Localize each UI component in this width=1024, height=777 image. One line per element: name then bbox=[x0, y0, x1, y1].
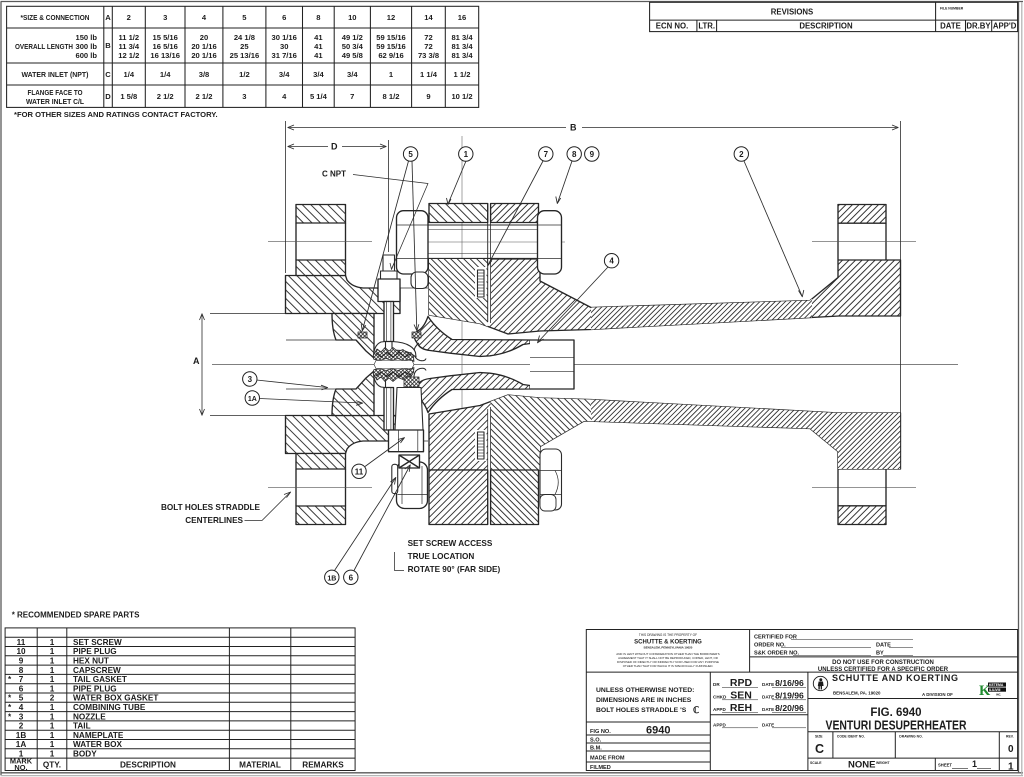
svg-text:150 lb: 150 lb bbox=[75, 33, 97, 42]
svg-text:B: B bbox=[570, 123, 577, 133]
svg-text:1A: 1A bbox=[16, 740, 27, 749]
svg-text:PIPE PLUG: PIPE PLUG bbox=[73, 647, 117, 656]
svg-text:6940: 6940 bbox=[646, 725, 670, 737]
svg-text:BENSALEM, PENNSYLVANIA 19020: BENSALEM, PENNSYLVANIA 19020 bbox=[644, 646, 693, 650]
svg-text:81 3/4: 81 3/4 bbox=[451, 51, 473, 60]
svg-text:4: 4 bbox=[609, 257, 614, 266]
svg-text:1 1/2: 1 1/2 bbox=[454, 70, 471, 79]
svg-text:1/2: 1/2 bbox=[239, 70, 250, 79]
svg-text:OTHER THAN THAT FOR WHICH IT I: OTHER THAN THAT FOR WHICH IT IS SPECIFIC… bbox=[623, 664, 714, 668]
svg-text:49 5/8: 49 5/8 bbox=[342, 51, 363, 60]
svg-text:TAIL: TAIL bbox=[73, 722, 91, 731]
svg-text:INC.: INC. bbox=[996, 693, 1001, 697]
svg-text:30: 30 bbox=[280, 42, 288, 51]
svg-text:OVERALL LENGTH: OVERALL LENGTH bbox=[15, 42, 73, 51]
svg-text:11: 11 bbox=[17, 638, 26, 647]
svg-text:41: 41 bbox=[314, 33, 323, 42]
svg-text:1: 1 bbox=[389, 70, 394, 79]
svg-text:CAPSCREW: CAPSCREW bbox=[73, 666, 121, 675]
svg-text:S.O.: S.O. bbox=[590, 738, 602, 744]
svg-text:4: 4 bbox=[202, 13, 207, 22]
svg-text:ℂ: ℂ bbox=[693, 705, 699, 715]
svg-text:*FOR OTHER SIZES AND RATINGS C: *FOR OTHER SIZES AND RATINGS CONTACT FAC… bbox=[14, 110, 218, 119]
svg-text:31 7/16: 31 7/16 bbox=[272, 51, 297, 60]
svg-text:REV.: REV. bbox=[1006, 735, 1014, 739]
svg-text:20 1/16: 20 1/16 bbox=[191, 51, 216, 60]
svg-text:DESCRIPTION: DESCRIPTION bbox=[799, 22, 853, 31]
svg-text:A: A bbox=[193, 356, 200, 366]
svg-text:1: 1 bbox=[50, 712, 55, 721]
svg-text:20 1/16: 20 1/16 bbox=[191, 42, 216, 51]
svg-text:8/20/96: 8/20/96 bbox=[775, 703, 804, 713]
svg-text:*: * bbox=[8, 712, 12, 721]
svg-text:D: D bbox=[105, 92, 111, 101]
svg-text:5: 5 bbox=[408, 150, 413, 159]
svg-text:300 lb: 300 lb bbox=[75, 42, 97, 51]
svg-text:REVISIONS: REVISIONS bbox=[771, 8, 813, 17]
svg-text:5: 5 bbox=[19, 694, 24, 703]
svg-text:24 1/8: 24 1/8 bbox=[234, 33, 255, 42]
svg-text:3: 3 bbox=[248, 375, 253, 384]
svg-text:10 1/2: 10 1/2 bbox=[451, 92, 472, 101]
svg-text:A: A bbox=[105, 13, 111, 22]
svg-text:DATE: DATE bbox=[762, 682, 774, 687]
svg-text:BODY: BODY bbox=[73, 750, 97, 759]
svg-text:30 1/16: 30 1/16 bbox=[272, 33, 297, 42]
svg-text:DATE: DATE bbox=[762, 707, 774, 712]
svg-text:5 1/4: 5 1/4 bbox=[310, 92, 328, 101]
svg-text:DATE: DATE bbox=[940, 22, 961, 31]
svg-text:BOLT HOLES STRADDLE: BOLT HOLES STRADDLE bbox=[161, 503, 261, 512]
svg-text:FLANGE FACE TO: FLANGE FACE TO bbox=[28, 88, 83, 97]
svg-text:59 15/16: 59 15/16 bbox=[376, 33, 406, 42]
svg-text:UNLESS OTHERWISE NOTED:: UNLESS OTHERWISE NOTED: bbox=[596, 687, 694, 694]
svg-text:MADE FROM: MADE FROM bbox=[590, 756, 625, 762]
svg-text:0: 0 bbox=[1008, 744, 1014, 755]
svg-text:6: 6 bbox=[19, 684, 24, 693]
svg-text:WATER BOX: WATER BOX bbox=[73, 740, 123, 749]
svg-text:DR.BY: DR.BY bbox=[966, 22, 991, 31]
svg-text:NO.: NO. bbox=[14, 763, 27, 772]
svg-text:DESCRIPTION: DESCRIPTION bbox=[120, 760, 176, 769]
svg-text:*: * bbox=[8, 703, 12, 712]
svg-text:DIMENSIONS ARE IN INCHES: DIMENSIONS ARE IN INCHES bbox=[596, 697, 692, 704]
svg-text:4: 4 bbox=[282, 92, 287, 101]
svg-text:1: 1 bbox=[1008, 762, 1014, 773]
svg-text:CERTIFIED FOR: CERTIFIED FOR bbox=[754, 635, 797, 641]
svg-text:11: 11 bbox=[355, 467, 364, 476]
svg-text:FILE NUMBER: FILE NUMBER bbox=[940, 7, 964, 11]
svg-text:4: 4 bbox=[19, 703, 24, 712]
svg-text:THIS DRAWING IS THE PROPERTY O: THIS DRAWING IS THE PROPERTY OF bbox=[639, 633, 697, 637]
svg-text:1: 1 bbox=[50, 722, 55, 731]
svg-text:NAMEPLATE: NAMEPLATE bbox=[73, 731, 124, 740]
svg-text:49 1/2: 49 1/2 bbox=[342, 33, 363, 42]
svg-text:8: 8 bbox=[19, 666, 24, 675]
svg-text:KETEMA: KETEMA bbox=[989, 683, 1004, 687]
svg-text:8: 8 bbox=[572, 150, 577, 159]
svg-text:5: 5 bbox=[242, 13, 247, 22]
svg-text:VENTURI DESUPERHEATER: VENTURI DESUPERHEATER bbox=[826, 718, 967, 733]
svg-text:DATE: DATE bbox=[876, 643, 891, 649]
svg-text:SCHUTTE AND KOERTING: SCHUTTE AND KOERTING bbox=[832, 673, 958, 683]
svg-text:1: 1 bbox=[464, 150, 469, 159]
svg-text:7: 7 bbox=[19, 675, 24, 684]
svg-text:BOLT HOLES STRADDLE 'S: BOLT HOLES STRADDLE 'S bbox=[596, 707, 687, 714]
svg-text:ECN NO.: ECN NO. bbox=[656, 22, 689, 31]
svg-text:1: 1 bbox=[50, 703, 55, 712]
svg-text:20: 20 bbox=[200, 33, 208, 42]
svg-text:SET SCREW: SET SCREW bbox=[73, 638, 122, 647]
svg-text:1 1/4: 1 1/4 bbox=[420, 70, 438, 79]
svg-text:CODE IDENT NO.: CODE IDENT NO. bbox=[837, 735, 865, 739]
svg-text:6: 6 bbox=[282, 13, 286, 22]
svg-text:QTY.: QTY. bbox=[43, 760, 61, 769]
svg-text:SIZE: SIZE bbox=[815, 735, 823, 739]
svg-text:1: 1 bbox=[50, 731, 55, 740]
svg-text:* RECOMMENDED SPARE PARTS: * RECOMMENDED SPARE PARTS bbox=[12, 611, 140, 620]
svg-text:MATERIAL: MATERIAL bbox=[239, 760, 281, 769]
svg-text:1: 1 bbox=[50, 740, 55, 749]
svg-text:62 9/16: 62 9/16 bbox=[378, 51, 403, 60]
svg-text:REMARKS: REMARKS bbox=[302, 760, 344, 769]
svg-text:DO NOT USE FOR CONSTRUCTION: DO NOT USE FOR CONSTRUCTION bbox=[832, 660, 934, 666]
svg-text:3/8: 3/8 bbox=[199, 70, 210, 79]
svg-text:3: 3 bbox=[163, 13, 167, 22]
svg-text:1B: 1B bbox=[16, 731, 27, 740]
svg-text:1: 1 bbox=[972, 759, 977, 769]
svg-text:9: 9 bbox=[19, 657, 24, 666]
svg-text:1: 1 bbox=[50, 647, 55, 656]
svg-text:BY: BY bbox=[876, 651, 884, 657]
svg-text:2: 2 bbox=[50, 694, 55, 703]
svg-text:3: 3 bbox=[19, 712, 24, 721]
svg-text:APP'D: APP'D bbox=[993, 22, 1017, 31]
svg-text:B: B bbox=[105, 41, 111, 50]
svg-text:16 13/16: 16 13/16 bbox=[150, 51, 180, 60]
svg-text:APPD: APPD bbox=[713, 723, 726, 728]
svg-text:CHKD: CHKD bbox=[713, 695, 727, 700]
svg-text:2: 2 bbox=[19, 722, 24, 731]
svg-text:1: 1 bbox=[50, 666, 55, 675]
svg-text:NOZZLE: NOZZLE bbox=[73, 712, 106, 721]
svg-text:COMBINING TUBE: COMBINING TUBE bbox=[73, 703, 146, 712]
svg-text:15 5/16: 15 5/16 bbox=[153, 33, 178, 42]
svg-text:1/4: 1/4 bbox=[160, 70, 171, 79]
svg-text:WATER INLET C/L: WATER INLET C/L bbox=[26, 97, 84, 106]
svg-text:10: 10 bbox=[348, 13, 356, 22]
svg-text:C: C bbox=[105, 70, 111, 79]
svg-text:7: 7 bbox=[350, 92, 354, 101]
svg-text:50 3/4: 50 3/4 bbox=[342, 42, 364, 51]
svg-text:NONE: NONE bbox=[848, 760, 875, 771]
svg-text:DATE: DATE bbox=[762, 723, 774, 728]
svg-text:SET SCREW ACCESS: SET SCREW ACCESS bbox=[408, 539, 493, 548]
svg-text:1: 1 bbox=[50, 750, 55, 759]
svg-text:TRUE LOCATION: TRUE LOCATION bbox=[408, 552, 475, 561]
svg-text:*: * bbox=[8, 694, 12, 703]
svg-text:8/19/96: 8/19/96 bbox=[775, 691, 804, 701]
svg-text:D: D bbox=[331, 142, 338, 152]
svg-text:FIG NO.: FIG NO. bbox=[590, 729, 611, 735]
svg-text:B.M.: B.M. bbox=[590, 746, 602, 752]
svg-text:1: 1 bbox=[50, 638, 55, 647]
svg-text:LTR.: LTR. bbox=[698, 22, 715, 31]
svg-text:81 3/4: 81 3/4 bbox=[451, 33, 473, 42]
svg-text:ILILIVIII: ILILIVIII bbox=[989, 688, 1000, 692]
svg-text:8 1/2: 8 1/2 bbox=[383, 92, 400, 101]
svg-text:ROTATE 90° (FAR SIDE): ROTATE 90° (FAR SIDE) bbox=[408, 565, 501, 574]
svg-text:C: C bbox=[815, 742, 824, 756]
svg-text:1: 1 bbox=[50, 675, 55, 684]
svg-text:3/4: 3/4 bbox=[347, 70, 358, 79]
svg-text:WATER BOX GASKET: WATER BOX GASKET bbox=[73, 694, 158, 703]
svg-text:FILMED: FILMED bbox=[590, 765, 611, 771]
svg-text:*: * bbox=[8, 675, 12, 684]
svg-text:14: 14 bbox=[424, 13, 433, 22]
svg-text:2 1/2: 2 1/2 bbox=[157, 92, 174, 101]
svg-text:2: 2 bbox=[127, 13, 131, 22]
svg-text:3: 3 bbox=[242, 92, 246, 101]
svg-text:3/4: 3/4 bbox=[279, 70, 290, 79]
svg-text:S&K ORDER NO.: S&K ORDER NO. bbox=[754, 651, 800, 657]
svg-text:41: 41 bbox=[314, 51, 323, 60]
svg-text:16: 16 bbox=[458, 13, 466, 22]
svg-text:1: 1 bbox=[50, 657, 55, 666]
svg-text:PIPE PLUG: PIPE PLUG bbox=[73, 684, 117, 693]
svg-text:11 3/4: 11 3/4 bbox=[118, 42, 139, 51]
svg-text:C NPT: C NPT bbox=[322, 170, 346, 179]
svg-text:72: 72 bbox=[424, 42, 432, 51]
svg-text:8: 8 bbox=[316, 13, 320, 22]
svg-text:10: 10 bbox=[16, 647, 26, 656]
svg-text:SCALE: SCALE bbox=[810, 761, 822, 765]
svg-text:16 5/16: 16 5/16 bbox=[153, 42, 178, 51]
svg-text:25: 25 bbox=[240, 42, 249, 51]
svg-text:11 1/2: 11 1/2 bbox=[118, 33, 139, 42]
svg-text:9: 9 bbox=[590, 150, 595, 159]
svg-text:3/4: 3/4 bbox=[313, 70, 324, 79]
svg-text:A DIVISION OF: A DIVISION OF bbox=[922, 692, 953, 697]
svg-text:*SIZE & CONNECTION: *SIZE & CONNECTION bbox=[21, 13, 90, 22]
svg-text:72: 72 bbox=[424, 33, 432, 42]
svg-text:DRAWING NO.: DRAWING NO. bbox=[899, 735, 922, 739]
svg-text:HEX NUT: HEX NUT bbox=[73, 657, 109, 666]
svg-text:600 lb: 600 lb bbox=[75, 51, 97, 60]
svg-text:1 5/8: 1 5/8 bbox=[120, 92, 137, 101]
svg-text:DR: DR bbox=[713, 682, 720, 687]
svg-text:25 13/16: 25 13/16 bbox=[230, 51, 260, 60]
svg-text:BENSALEM, PA. 19020: BENSALEM, PA. 19020 bbox=[833, 691, 881, 696]
svg-text:41: 41 bbox=[314, 42, 323, 51]
svg-text:73 3/8: 73 3/8 bbox=[418, 51, 439, 60]
svg-text:12: 12 bbox=[387, 13, 395, 22]
svg-text:8/16/96: 8/16/96 bbox=[775, 678, 804, 688]
svg-text:WEIGHT: WEIGHT bbox=[876, 761, 890, 765]
svg-text:1A: 1A bbox=[248, 396, 257, 403]
svg-text:1B: 1B bbox=[327, 575, 336, 582]
svg-text:9: 9 bbox=[426, 92, 430, 101]
svg-text:SHEET: SHEET bbox=[938, 763, 952, 768]
svg-text:6: 6 bbox=[349, 573, 354, 582]
svg-text:81 3/4: 81 3/4 bbox=[451, 42, 473, 51]
svg-text:7: 7 bbox=[544, 150, 549, 159]
svg-text:CENTERLINES: CENTERLINES bbox=[185, 516, 243, 525]
svg-text:APPD: APPD bbox=[713, 707, 726, 712]
svg-text:TAIL GASKET: TAIL GASKET bbox=[73, 675, 127, 684]
svg-text:1/4: 1/4 bbox=[124, 70, 135, 79]
svg-text:DATE: DATE bbox=[762, 695, 774, 700]
svg-text:2: 2 bbox=[739, 150, 744, 159]
svg-text:12 1/2: 12 1/2 bbox=[118, 51, 139, 60]
svg-text:1: 1 bbox=[50, 684, 55, 693]
svg-text:2 1/2: 2 1/2 bbox=[196, 92, 213, 101]
svg-text:59 15/16: 59 15/16 bbox=[376, 42, 406, 51]
svg-text:WATER INLET (NPT): WATER INLET (NPT) bbox=[22, 70, 89, 79]
